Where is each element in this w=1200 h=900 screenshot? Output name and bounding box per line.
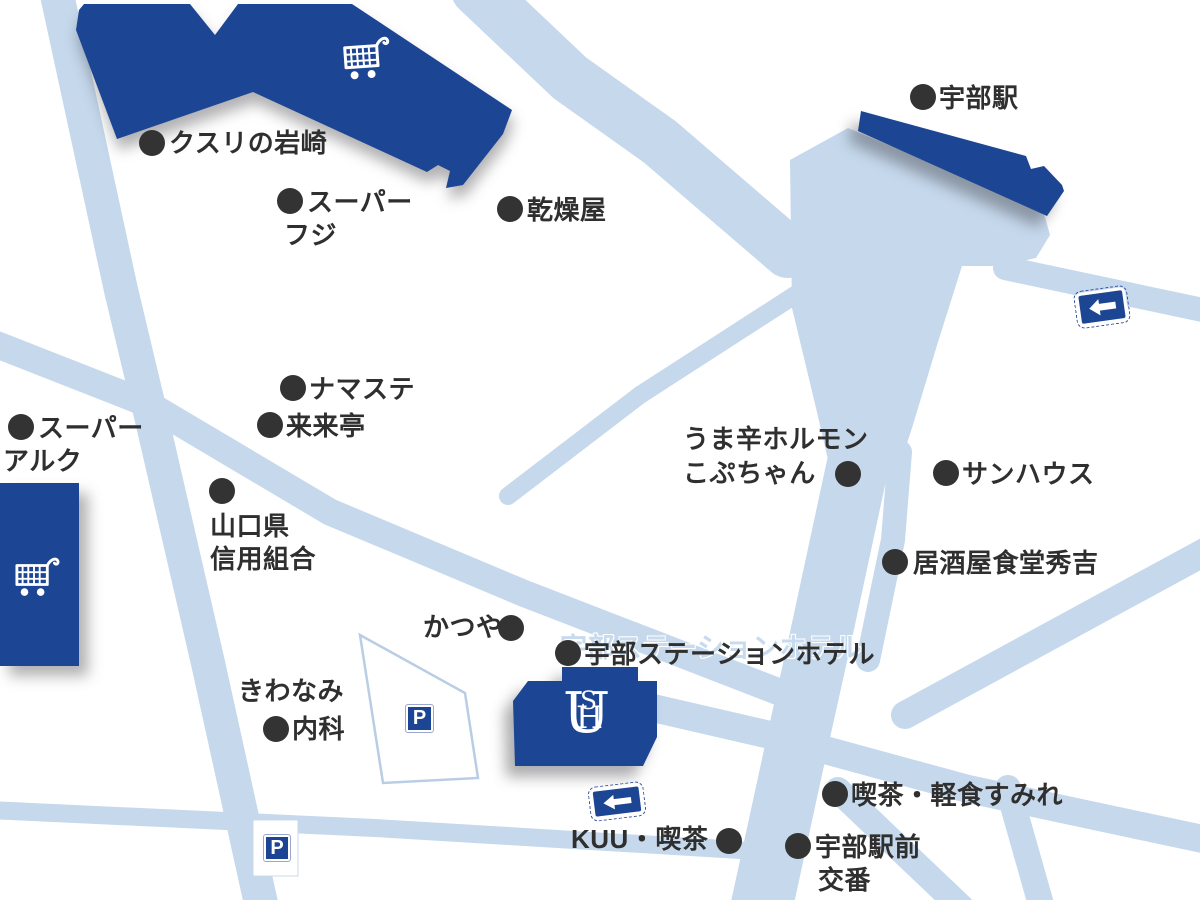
poi-label-umakara-horumon-kopuchan: こぷちゃん	[683, 459, 816, 487]
poi-dot-namaste	[280, 375, 306, 401]
one-way-sign-station	[1073, 284, 1132, 329]
poi-label-yamaguchiken-shinyokumiai: 山口県	[210, 512, 290, 540]
poi-label-sunhouse: サンハウス	[962, 460, 1095, 488]
poi-label-ube-station-hotel: 宇部ステーションホテル	[584, 640, 875, 668]
poi-dot-super-fuji	[277, 188, 303, 214]
road	[477, 0, 788, 252]
poi-dot-yamaguchiken-shinyokumiai	[209, 478, 235, 504]
poi-label-super-aruku: アルク	[3, 447, 82, 475]
poi-label-izakaya-shokudo-hideyoshi: 居酒屋食堂秀吉	[913, 549, 1099, 577]
building-shopping-center	[76, 4, 512, 188]
poi-dot-sunhouse	[933, 460, 959, 486]
poi-dot-super-aruku	[8, 414, 34, 440]
poi-label-rairaitei: 来来亭	[286, 412, 366, 440]
poi-label-ube-ekimae-koban: 交番	[818, 866, 871, 894]
poi-label-ube-station: 宇部駅	[939, 84, 1019, 112]
poi-dot-umakara-horumon-kopuchan	[835, 461, 861, 487]
poi-label-kissa-keishoku-sumire: 喫茶・軽食すみれ	[851, 781, 1063, 809]
poi-dot-kansouya	[497, 196, 523, 222]
poi-label-super-fuji: スーパー	[307, 188, 413, 216]
poi-dot-kusuri-no-iwasaki	[139, 130, 165, 156]
poi-label-kiwanami-naika: 内科	[292, 715, 345, 743]
parking-sign-hotel: P	[406, 705, 433, 732]
one-way-arrow-icon	[1075, 287, 1129, 328]
map-canvas: 宇部ステーションホテル クスリの岩崎スーパーフジ乾燥屋宇部駅ナマステ来来亭スーパ…	[0, 0, 1200, 900]
poi-label-kusuri-no-iwasaki: クスリの岩崎	[169, 129, 327, 157]
one-way-arrow-icon	[589, 783, 644, 820]
poi-label-ube-ekimae-koban: 宇部駅前	[815, 833, 921, 861]
poi-dot-kissa-keishoku-sumire	[822, 781, 848, 807]
poi-label-super-aruku: スーパー	[38, 414, 144, 442]
poi-dot-rairaitei	[257, 412, 283, 438]
parking-sign-south: P	[264, 835, 290, 861]
poi-label-super-fuji: フジ	[284, 221, 337, 249]
poi-label-namaste: ナマステ	[309, 375, 415, 403]
poi-label-katsuya: かつや	[423, 613, 503, 641]
poi-label-kansouya: 乾燥屋	[527, 196, 607, 224]
poi-label-kiwanami-naika: きわなみ	[238, 677, 344, 705]
poi-dot-ube-station	[910, 84, 936, 110]
logo-letter-h: H	[576, 703, 603, 734]
poi-label-yamaguchiken-shinyokumiai: 信用組合	[210, 545, 316, 573]
poi-dot-ube-ekimae-koban	[785, 833, 811, 859]
poi-dot-ube-station-hotel	[555, 640, 581, 666]
poi-dot-izakaya-shokudo-hideyoshi	[882, 549, 908, 575]
one-way-sign-hotel	[587, 781, 647, 823]
poi-dot-kuu-kissa	[716, 828, 742, 854]
hotel-ush-logo-icon: U S H	[560, 684, 614, 746]
poi-label-kuu-kissa: KUU・喫茶	[571, 825, 708, 853]
poi-label-umakara-horumon-kopuchan: うま辛ホルモン	[683, 425, 869, 453]
poi-dot-kiwanami-naika	[263, 716, 289, 742]
